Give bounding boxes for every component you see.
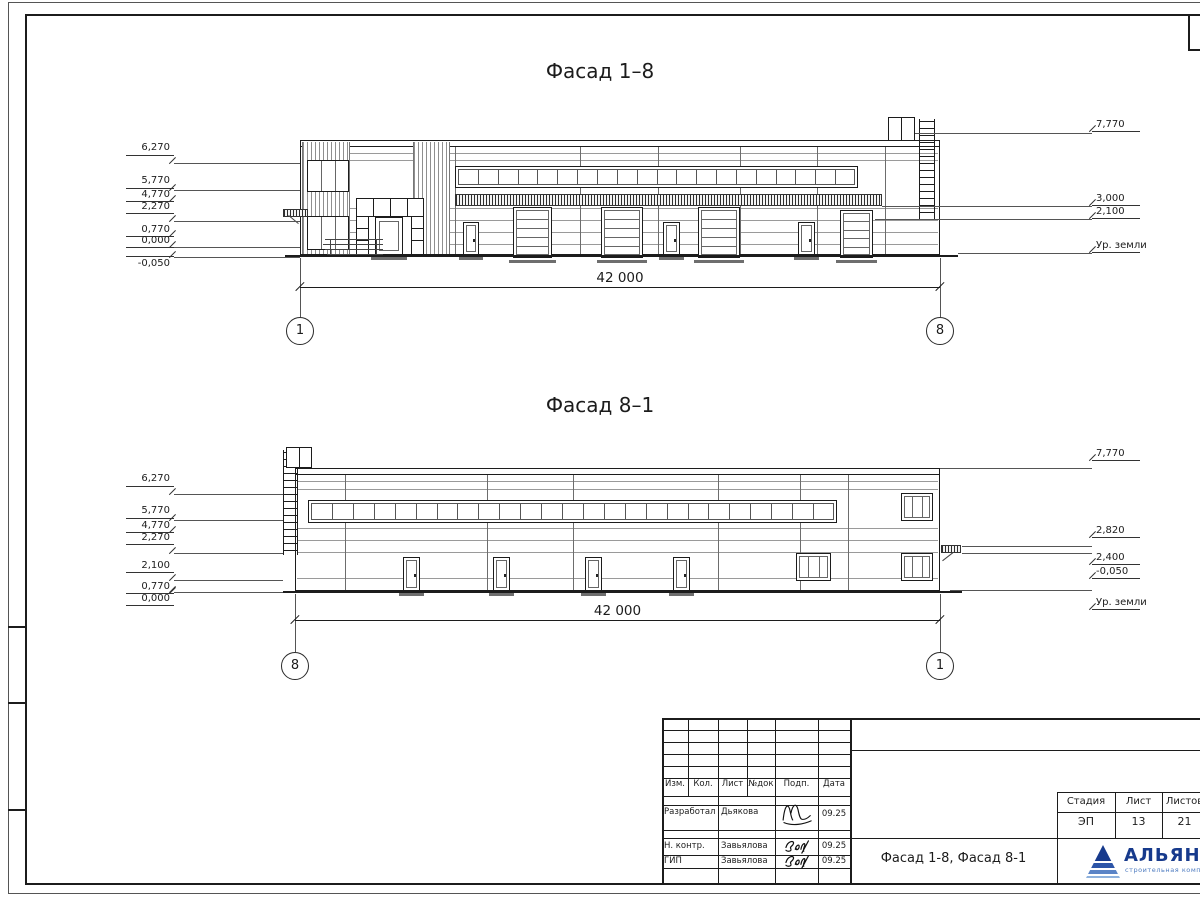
portal-quoin [357, 228, 368, 229]
date-cell: 09.25 [819, 842, 849, 852]
grid-line [940, 288, 941, 317]
clerestory-mullion [617, 170, 618, 184]
doc-title: Фасад 1-8, Фасад 8-1 [850, 852, 1057, 867]
gate-slat [702, 246, 736, 247]
ladder-rung [919, 191, 934, 192]
stair-rail [330, 239, 331, 255]
clerestory-mullion [395, 504, 396, 519]
tb-line [662, 766, 850, 767]
elevation-shelf [1092, 609, 1140, 610]
elevation-mark: -0,050 [122, 258, 170, 270]
window-mullion [321, 217, 322, 249]
ladder-rung [919, 198, 934, 199]
canopy [283, 209, 308, 217]
dim-line [295, 620, 940, 621]
date-cell: 09.25 [819, 857, 849, 867]
elevation-mark: 2,100 [1096, 206, 1156, 218]
column-line [885, 147, 886, 254]
elevation-leader [875, 219, 1092, 220]
rect [799, 556, 828, 578]
company-subtitle: строительная компания [1125, 867, 1200, 874]
clerestory-mullion [332, 504, 333, 519]
elevation-shelf [1092, 252, 1140, 253]
elevation-mark: 2,100 [122, 560, 170, 572]
elevation-mark: -0,050 [1096, 566, 1156, 578]
tb-line [850, 838, 1200, 839]
elevation-mark: 2,270 [122, 532, 170, 544]
logo-stripe [1086, 863, 1120, 868]
frame [25, 14, 27, 885]
elevation-mark: Ур. земли [1096, 597, 1156, 609]
grid-bubble: 1 [926, 652, 954, 680]
tb-line [662, 730, 850, 731]
clerestory-mullion [756, 170, 757, 184]
clerestory-mullion [657, 170, 658, 184]
siding-line [297, 489, 938, 490]
elevation-shelf [126, 486, 174, 487]
elevation-leader [174, 580, 283, 581]
clerestory-mullion [499, 504, 500, 519]
window-mullion [335, 161, 336, 191]
elevation-leader [174, 520, 283, 521]
elevation-leader [882, 206, 1092, 207]
elevation-mark: 2,400 [1096, 552, 1156, 564]
ladder-rung [919, 184, 934, 185]
window-mullion [922, 496, 923, 518]
portal-quoin [373, 199, 374, 216]
role-cell: ГИП [664, 857, 717, 867]
ladder-rung [283, 543, 297, 544]
rect [311, 503, 834, 520]
gate-slat [517, 237, 548, 238]
side-stamp-divider [8, 809, 25, 811]
tb-line [662, 742, 850, 743]
signature [784, 839, 816, 854]
clerestory-mullion [557, 170, 558, 184]
clerestory-mullion [498, 170, 499, 184]
side-stamp-divider [8, 702, 25, 704]
gate-slat [702, 219, 736, 220]
elevation-leader [174, 257, 300, 258]
gate-slat [517, 246, 548, 247]
ladder-rung [283, 522, 297, 523]
siding-line [297, 481, 938, 482]
elevation-mark: 3,000 [1096, 193, 1156, 205]
ladder-rung [283, 536, 297, 537]
column-line [487, 475, 488, 590]
name-cell: Завьялова [721, 857, 773, 867]
siding-line [297, 578, 938, 579]
corner-box [1188, 49, 1200, 51]
elevation-mark: 4,770 [122, 189, 170, 201]
door-handle [596, 574, 598, 577]
role-cell: Разработал [664, 808, 717, 818]
grid-line [295, 621, 296, 652]
role-cell: Н. контр. [664, 842, 717, 852]
clerestory-mullion [625, 504, 626, 519]
elevation-shelf [126, 256, 174, 257]
gate-slat [517, 228, 548, 229]
door-handle [809, 239, 811, 242]
gate-slat [844, 238, 869, 239]
ladder-rung [283, 494, 297, 495]
elevation-leader [174, 247, 300, 248]
rect [604, 210, 640, 255]
door-handle [674, 239, 676, 242]
tb-line [850, 750, 1200, 751]
elevation-leader [958, 253, 1092, 254]
elevation-mark: 0,770 [122, 581, 170, 593]
elevation-shelf [126, 213, 174, 214]
company-name: АЛЬЯНС [1124, 846, 1200, 867]
tb-line [662, 868, 850, 869]
corner-box [1188, 16, 1190, 50]
name-cell: Дьякова [721, 808, 773, 818]
apron [581, 593, 606, 596]
side-stamp-divider [8, 626, 25, 628]
ladder-rung [919, 149, 934, 150]
ladder-rung [283, 473, 297, 474]
elevation-mark: 5,770 [122, 175, 170, 187]
gate-slat [517, 219, 548, 220]
clerestory-mullion [583, 504, 584, 519]
window [307, 160, 349, 192]
clerestory-mullion [518, 170, 519, 184]
elevation-shelf [126, 518, 174, 519]
change-header-cell: Лист [718, 780, 747, 790]
column-line [848, 475, 849, 590]
apron [459, 257, 483, 260]
gate-slat [605, 219, 639, 220]
titleblock-border [662, 718, 1200, 720]
clerestory-mullion [736, 170, 737, 184]
change-header-cell: Подп. [775, 780, 818, 790]
elevation-shelf [126, 155, 174, 156]
tb-line [718, 718, 719, 883]
clerestory-mullion [637, 170, 638, 184]
grid-line [300, 288, 301, 317]
elevation-mark: 0,770 [122, 224, 170, 236]
window-mullion [912, 496, 913, 518]
siding-line [297, 540, 938, 541]
portal-quoin [357, 240, 368, 241]
clerestory-mullion [478, 504, 479, 519]
grid-bubble: 8 [926, 317, 954, 345]
gate-slat [605, 246, 639, 247]
ladder-rung [919, 142, 934, 143]
parapet-line [295, 474, 940, 475]
clerestory-mullion [813, 504, 814, 519]
clerestory-mullion [562, 504, 563, 519]
stage-label: Стадия [1057, 796, 1115, 808]
clerestory-mullion [792, 504, 793, 519]
elevation-leader [174, 221, 300, 222]
ladder-rung [283, 515, 297, 516]
elevation-leader [174, 592, 283, 593]
clerestory-mullion [374, 504, 375, 519]
elevation-leader [950, 590, 1092, 591]
portal-quoin [390, 199, 391, 216]
ladder-rung [283, 480, 297, 481]
gate-slat [605, 237, 639, 238]
ground-line [285, 255, 958, 257]
grid-bubble: 8 [281, 652, 309, 680]
door-handle [504, 574, 506, 577]
clerestory-mullion [729, 504, 730, 519]
siding-line [297, 552, 938, 553]
apron [669, 593, 694, 596]
siding-line [302, 160, 938, 161]
clerestory-mullion [795, 170, 796, 184]
logo-stripe [1086, 845, 1120, 861]
gate-slat [702, 237, 736, 238]
ladder-rung [919, 177, 934, 178]
ladder-rung [283, 550, 297, 551]
elevation-mark: 4,770 [122, 520, 170, 532]
clerestory-mullion [416, 504, 417, 519]
elevation-mark: 5,770 [122, 505, 170, 517]
ground-line [283, 591, 962, 593]
elevation-shelf [1092, 578, 1140, 579]
door-handle [684, 574, 686, 577]
canopy-bracket [942, 552, 954, 561]
ladder-rung [283, 501, 297, 502]
elevation-shelf [126, 544, 174, 545]
apron [694, 260, 744, 263]
apron [659, 257, 684, 260]
siding-line [302, 153, 938, 154]
elevation-leader [174, 553, 283, 554]
company-logo-pyramid [1086, 845, 1120, 878]
column-line [718, 475, 719, 590]
elevation-leader [174, 494, 283, 495]
clerestory-mullion [537, 170, 538, 184]
elevation-shelf [1092, 537, 1140, 538]
page-edge [8, 893, 1200, 894]
clerestory-mullion [604, 504, 605, 519]
clerestory-mullion [750, 504, 751, 519]
elevation-leader [962, 553, 1092, 554]
elevation-leader [174, 190, 300, 191]
stair-rail [376, 239, 377, 255]
elevation-mark: 2,270 [122, 201, 170, 213]
clerestory-mullion [676, 170, 677, 184]
gate-slat [844, 221, 869, 222]
sheets-value: 21 [1162, 816, 1200, 829]
clerestory-mullion [478, 170, 479, 184]
drawing-canvas: Фасад 1–842 000186,2705,7704,7702,2700,7… [0, 0, 1200, 900]
date-cell: 09.25 [819, 810, 849, 820]
clerestory-mullion [520, 504, 521, 519]
elevation-mark: 2,820 [1096, 525, 1156, 537]
clerestory-mullion [688, 504, 689, 519]
clerestory-mullion [776, 170, 777, 184]
clerestory-mullion [646, 504, 647, 519]
ladder-rung [919, 156, 934, 157]
change-header-cell: Дата [818, 780, 850, 790]
stair-rail [325, 239, 383, 240]
ladder-rung [919, 163, 934, 164]
logo-stripe [1086, 870, 1120, 874]
apron [794, 257, 819, 260]
clerestory-mullion [541, 504, 542, 519]
tb-line [662, 796, 850, 797]
rect [701, 210, 737, 255]
elevation-shelf [1092, 218, 1140, 219]
roof-box-divider [299, 448, 300, 467]
stair-rail [325, 249, 383, 250]
roof-box-divider [901, 118, 902, 140]
sheet-label: Лист [1115, 796, 1162, 808]
gate-slat [702, 228, 736, 229]
grid-bubble: 1 [286, 317, 314, 345]
clerestory-mullion [771, 504, 772, 519]
stage-value: ЭП [1057, 816, 1115, 829]
clerestory-mullion [667, 504, 668, 519]
clerestory-mullion [437, 504, 438, 519]
elevation-mark: 7,770 [1096, 448, 1156, 460]
frame [25, 883, 1200, 885]
window-mullion [808, 556, 809, 578]
ladder-rung [919, 135, 934, 136]
elevation-mark: 0,000 [122, 235, 170, 247]
page-edge [8, 2, 1200, 3]
dimension-label: 42 000 [300, 271, 940, 287]
frame [25, 14, 1200, 16]
facade-title: Фасад 1–8 [450, 60, 750, 83]
elevation-shelf [1092, 564, 1140, 565]
ladder-rung [283, 487, 297, 488]
signature [784, 854, 816, 869]
ladder-rung [919, 212, 934, 213]
sheets-label: Листов [1162, 796, 1200, 808]
ladder-rung [919, 128, 934, 129]
clerestory-mullion [716, 170, 717, 184]
dim-line [300, 287, 940, 288]
tb-line [662, 754, 850, 755]
window-mullion [819, 556, 820, 578]
name-cell: Завьялова [721, 842, 773, 852]
tb-line [1057, 812, 1200, 813]
elevation-mark: 6,270 [122, 473, 170, 485]
louver-band [455, 194, 882, 206]
column-line [573, 475, 574, 590]
signature [779, 799, 817, 827]
tb-line [775, 718, 776, 883]
ladder-rung [283, 529, 297, 530]
clerestory-mullion [696, 170, 697, 184]
rect [904, 496, 930, 518]
tb-line [662, 830, 850, 831]
page-edge [8, 2, 9, 893]
clerestory-mullion [597, 170, 598, 184]
apron [399, 593, 424, 596]
stair-rail [323, 244, 383, 245]
portal-quoin [412, 240, 423, 241]
door-handle [414, 574, 416, 577]
clerestory-mullion [815, 170, 816, 184]
clerestory-mullion [353, 504, 354, 519]
ladder-rung [919, 121, 934, 122]
ladder-rail [919, 119, 920, 219]
elevation-leader [940, 468, 1092, 469]
ladder-rung [283, 508, 297, 509]
elevation-mark: 7,770 [1096, 119, 1156, 131]
gate-slat [844, 247, 869, 248]
elevation-leader [962, 546, 1092, 547]
grid-line [940, 621, 941, 652]
parapet-line [300, 146, 940, 147]
elevation-mark: 0,000 [122, 593, 170, 605]
rect [904, 556, 930, 578]
logo-stripe [1086, 876, 1120, 879]
gate-slat [844, 230, 869, 231]
dimension-label: 42 000 [295, 604, 940, 620]
rect [379, 221, 399, 251]
clerestory-mullion [577, 170, 578, 184]
elevation-shelf [1092, 131, 1140, 132]
window-mullion [321, 161, 322, 191]
rect [516, 210, 549, 255]
apron [836, 260, 877, 263]
apron [489, 593, 514, 596]
elevation-shelf [126, 605, 174, 606]
building-outline [295, 468, 940, 591]
door-handle [473, 239, 475, 242]
ladder-rail [934, 119, 935, 219]
elevation-shelf [1092, 460, 1140, 461]
elevation-mark: 6,270 [122, 142, 170, 154]
gate-slat [605, 228, 639, 229]
facade-title: Фасад 8–1 [450, 394, 750, 417]
column-line [345, 475, 346, 590]
portal-quoin [411, 217, 412, 255]
apron [509, 260, 556, 263]
ladder-rung [919, 170, 934, 171]
apron [597, 260, 647, 263]
elevation-shelf [126, 572, 174, 573]
portal-quoin [412, 228, 423, 229]
clerestory-mullion [457, 504, 458, 519]
sheet-value: 13 [1115, 816, 1162, 829]
apron [371, 257, 407, 260]
rect [843, 213, 870, 255]
window-mullion [912, 556, 913, 578]
clerestory-mullion [835, 170, 836, 184]
change-header-cell: Изм. [662, 780, 688, 790]
tb-line [662, 838, 850, 839]
tb-line [1057, 792, 1200, 793]
elevation-shelf [126, 247, 174, 248]
siding-line [297, 528, 938, 529]
elevation-mark: Ур. земли [1096, 240, 1156, 252]
tb-line [662, 805, 850, 806]
change-header-cell: Кол. [688, 780, 718, 790]
portal-quoin [407, 199, 408, 216]
elevation-leader [174, 163, 300, 164]
clerestory-mullion [708, 504, 709, 519]
drawing-sheet: Фасад 1–842 000186,2705,7704,7702,2700,7… [0, 0, 1200, 900]
elevation-leader [915, 133, 1092, 134]
window-mullion [922, 556, 923, 578]
change-header-cell: №док [747, 780, 775, 790]
